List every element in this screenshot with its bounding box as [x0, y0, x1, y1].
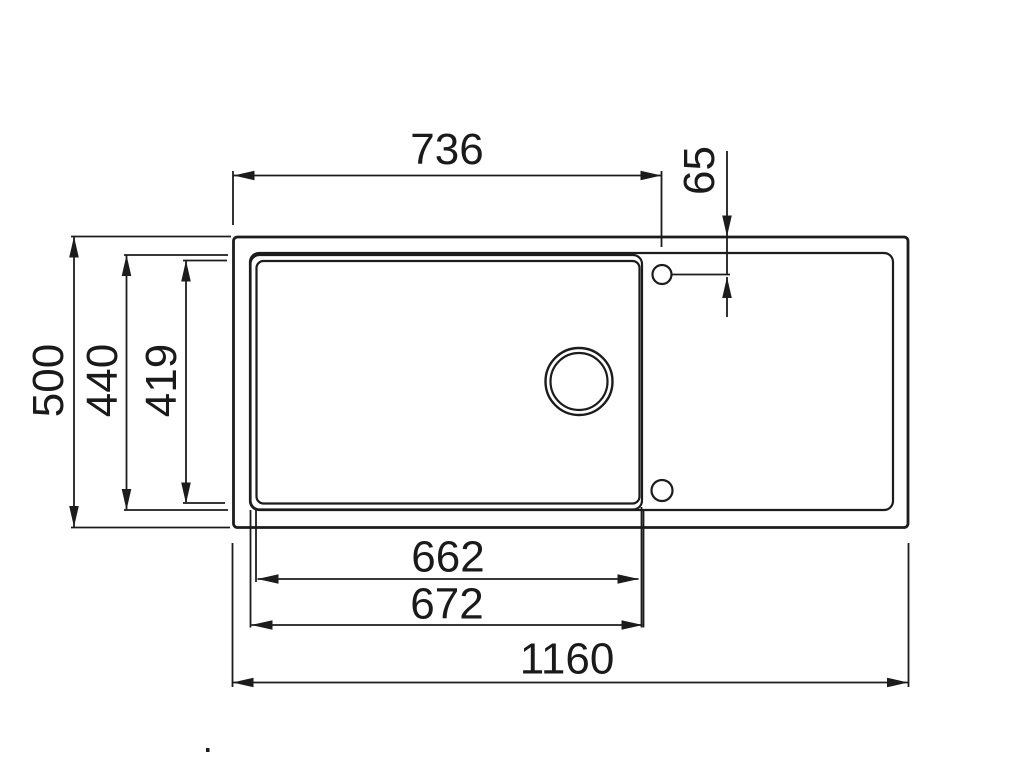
svg-text:419: 419 — [137, 344, 186, 417]
svg-text:440: 440 — [78, 344, 127, 417]
svg-text:500: 500 — [24, 344, 73, 417]
svg-text:1160: 1160 — [520, 635, 615, 684]
svg-text:662: 662 — [411, 533, 484, 582]
svg-text:65: 65 — [675, 146, 724, 195]
svg-text:672: 672 — [410, 580, 483, 629]
svg-text:736: 736 — [410, 125, 483, 174]
